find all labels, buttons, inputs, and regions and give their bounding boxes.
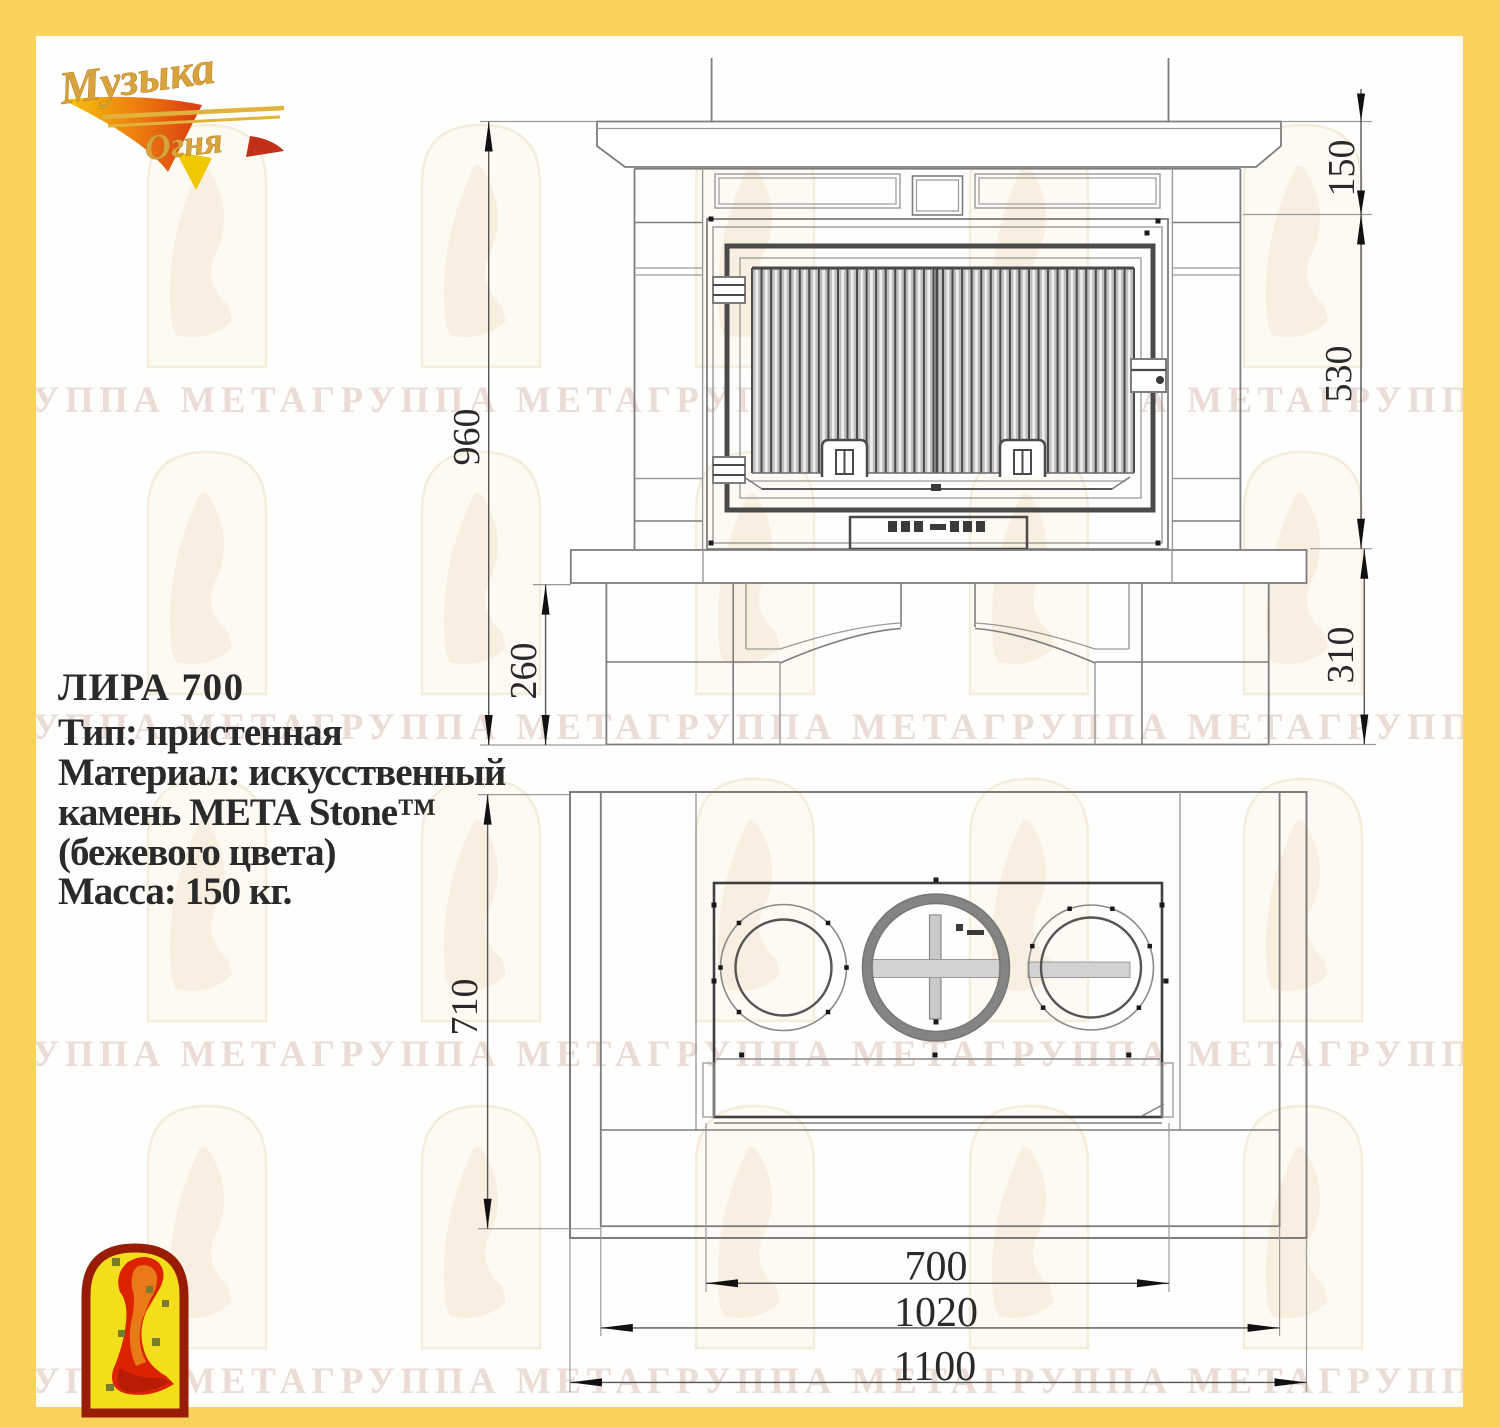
svg-text:1020: 1020 (894, 1290, 978, 1336)
svg-text:260: 260 (503, 643, 545, 700)
svg-text:(бежевого цвета): (бежевого цвета) (58, 831, 336, 874)
svg-text:Тип: пристенная: Тип: пристенная (58, 711, 343, 754)
svg-text:700: 700 (905, 1244, 968, 1290)
svg-text:камень МЕТА Stone™: камень МЕТА Stone™ (58, 791, 435, 834)
svg-text:710: 710 (444, 979, 486, 1036)
svg-text:Материал: искусственный: Материал: искусственный (58, 751, 506, 794)
svg-text:Огня: Огня (143, 120, 225, 168)
svg-text:ЛИРА 700: ЛИРА 700 (58, 666, 245, 709)
svg-text:150: 150 (1321, 140, 1363, 197)
svg-text:530: 530 (1318, 346, 1360, 403)
svg-text:ГРУППА МЕТАГРУППА МЕТАГРУППА М: ГРУППА МЕТАГРУППА МЕТАГРУППА МЕТАГРУППА … (0, 1034, 1500, 1075)
svg-text:1100: 1100 (894, 1344, 976, 1390)
svg-text:310: 310 (1320, 627, 1362, 684)
svg-text:960: 960 (446, 409, 488, 466)
svg-text:Масса: 150 кг.: Масса: 150 кг. (58, 870, 292, 913)
svg-text:ГРУППА МЕТАГРУППА МЕТАГРУППА М: ГРУППА МЕТАГРУППА МЕТАГРУППА МЕТАГРУППА … (0, 380, 1500, 421)
